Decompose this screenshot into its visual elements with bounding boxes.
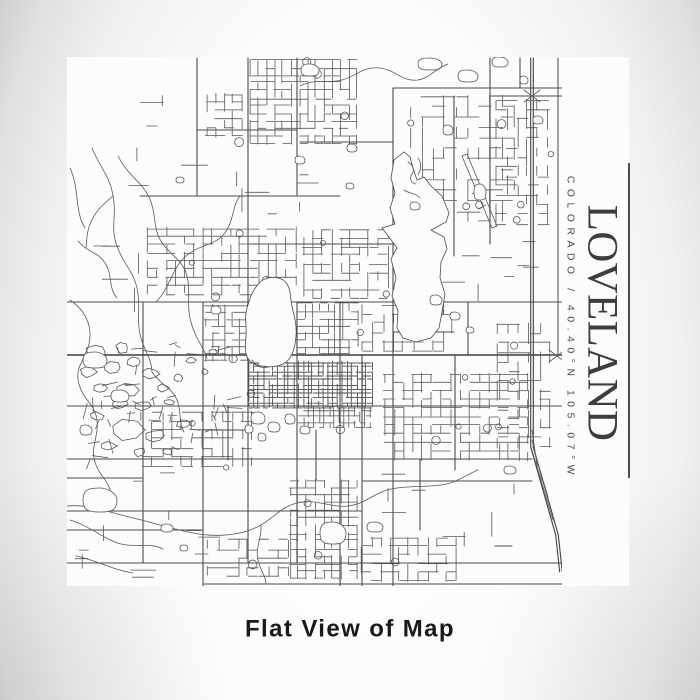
svg-text:COLORADO / 40.40°N 105.07°W: COLORADO / 40.40°N 105.07°W <box>565 176 576 480</box>
svg-text:LOVELAND: LOVELAND <box>578 205 625 441</box>
svg-text:Flat View of Map: Flat View of Map <box>245 616 455 643</box>
